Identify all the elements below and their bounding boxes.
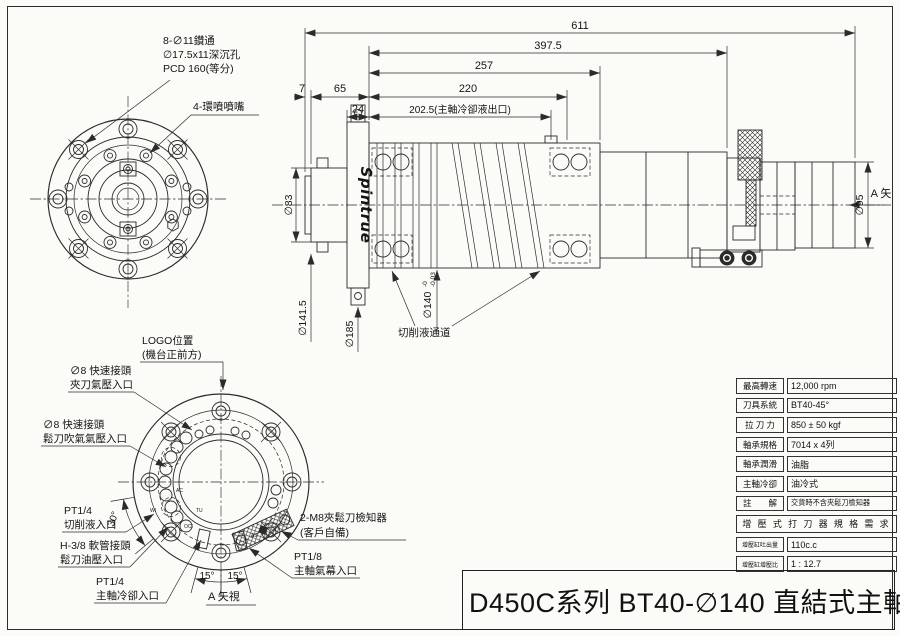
air-curtain-label2: 主軸氣幕入口 [294,564,357,577]
dim-2025-coolant-outlet: 202.5(主軸冷卻液出口) [409,103,511,116]
detector-label: 2-M8夾鬆刀檢知器 [300,511,387,524]
spec-table: 最高轉速 12,000 rpm 刀具系統 BT40-45° 拉 刀 力 850 … [736,378,897,576]
spec-row-bearing-spec: 軸承規格 7014 x 4列 [736,437,897,453]
spec-value: 油脂 [787,456,897,472]
dim-397: 397.5 [534,40,562,52]
dim-overall: 611 [571,20,589,32]
logo-position-label: LOGO位置 [142,334,193,347]
spec-value: 7014 x 4列 [787,437,897,453]
spec-row-lubrication: 軸承潤滑 油脂 [736,456,897,472]
drawing-title: D450C系列 BT40-∅140 直結式主軸 [469,581,900,620]
port-tag-wi: WI [150,508,156,514]
brand-logo: Spintrue [357,167,375,244]
angle-15-right: 15° [227,571,242,582]
title-block: D450C系列 BT40-∅140 直結式主軸 [462,570,895,630]
view-a-label: A 矢視 [208,589,240,603]
front-view [30,80,259,308]
dimension-lines [291,26,891,352]
spec-value: 110c.c [787,537,897,553]
dim-257: 257 [475,60,493,72]
view-a-arrow-label: A 矢 [871,186,892,200]
spec-value: 油冷式 [787,476,897,492]
front-note-drill: 8-∅11鑽通 [163,34,215,47]
dim-dia140-tol-upper: -0 [422,281,429,287]
dim-65: 65 [334,83,346,95]
spec-value: 交貨時不含夾鬆刀檢知器 [787,496,897,512]
spindle-cooling-label: PT1/4 [96,576,124,588]
front-view-notes: 8-∅11鑽通 ∅17.5x11深沉孔 PCD 160(等分) 4-環噴噴嘴 [163,34,245,113]
dim-dia95: ∅95 [854,194,866,215]
spec-row-speed: 最高轉速 12,000 rpm [736,378,897,394]
dim-dia83: ∅83 [283,194,295,215]
rear-view-labels: LOGO位置 (機台正前方) ∅8 快速接頭 夾刀氣壓入口 ∅8 快速接頭 鬆刀… [43,334,387,603]
spec-label: 增壓缸吐出量 [736,537,784,553]
rear-bearing [550,148,590,263]
spec-label: 拉 刀 力 [736,417,784,433]
dim-dia140: ∅140 [422,292,434,319]
spec-label: 最高轉速 [736,378,784,394]
spec-row-drawbar-force: 拉 刀 力 850 ± 50 kgf [736,417,897,433]
cutting-fluid-label2: 切削液入口 [64,518,117,531]
spec-label: 軸承潤滑 [736,456,784,472]
front-note-nozzle: 4-環噴噴嘴 [193,101,245,113]
spec-row-tool-system: 刀具系統 BT40-45° [736,398,897,414]
dim-dia185: ∅185 [344,321,356,348]
spec-label: 刀具系統 [736,398,784,414]
booster-header: 增 壓 式 打 刀 器 規 格 需 求 [736,515,897,533]
spec-row-note: 註 解 交貨時不含夾鬆刀檢知器 [736,496,897,512]
drawing-page: 8-∅11鑽通 ∅17.5x11深沉孔 PCD 160(等分) 4-環噴噴嘴 [0,0,900,636]
dim-dia140-tol-lower: -0.03 [430,272,437,287]
port-tag-ac: AC [176,488,183,494]
spindle-cooling-label2: 主軸冷卻入口 [96,589,159,602]
spec-row-cooling: 主軸冷卻 油冷式 [736,476,897,492]
port-tag-oci: OCI [184,524,193,530]
cutting-fluid-label: PT1/4 [64,505,92,517]
detector-label2: (客戶自備) [300,526,349,539]
front-bearing [372,148,412,263]
port-tag-as: AS [251,533,258,539]
spec-row-booster-volume: 增壓缸吐出量 110c.c [736,537,897,553]
spec-label: 主軸冷卻 [736,476,784,492]
coolant-channel-label: 切削液通道 [398,326,451,339]
spec-value: 12,000 rpm [787,378,897,394]
dim-7: 7 [299,83,305,95]
dim-dia141: ∅141.5 [297,300,309,336]
dim-24: 24 [352,104,364,116]
spec-label: 註 解 [736,496,784,512]
unclamp-air-label2: 鬆刀吹氣氣壓入口 [43,432,127,445]
spec-value: BT40-45° [787,398,897,414]
spec-label: 軸承規格 [736,437,784,453]
air-curtain-label: PT1/8 [294,551,322,563]
angle-15-left: 15° [199,571,214,582]
hose-coupling-label2: 鬆刀油壓入口 [60,553,123,566]
clamp-detector [232,509,294,551]
hose-coupling-label: H-3/8 軟管接頭 [60,539,131,552]
rear-bracket [692,248,762,267]
clamp-air-label: ∅8 快速接頭 [70,364,132,377]
spec-value: 850 ± 50 kgf [787,417,897,433]
clamp-air-label2: 夾刀氣壓入口 [70,378,133,391]
dim-220: 220 [459,83,477,95]
port-tag-tu: TU [196,508,203,514]
front-note-counterbore: ∅17.5x11深沉孔 [163,48,241,61]
logo-position-label2: (機台正前方) [142,348,202,361]
unclamp-air-label: ∅8 快速接頭 [43,418,105,431]
front-note-pcd: PCD 160(等分) [163,62,234,75]
